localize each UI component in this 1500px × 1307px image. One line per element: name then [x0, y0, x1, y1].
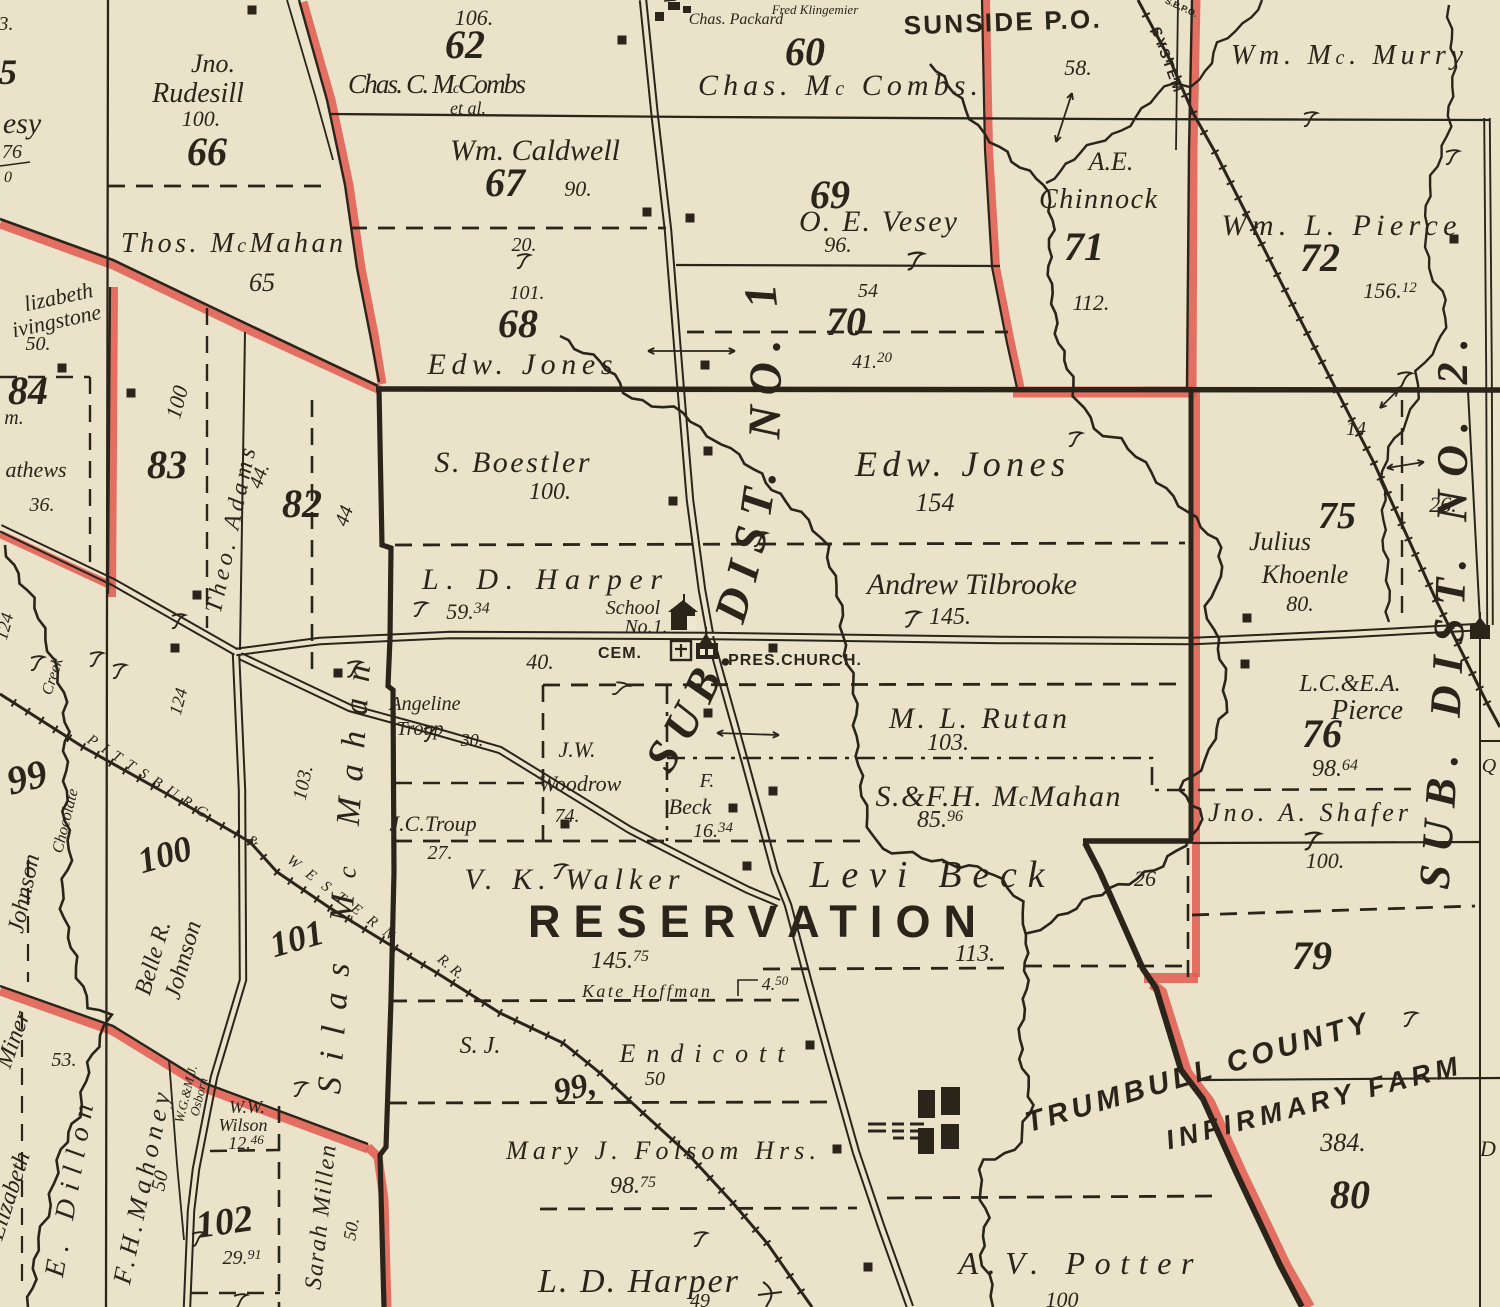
svg-text:103.: 103.	[927, 730, 969, 756]
svg-text:79: 79	[1292, 933, 1332, 978]
svg-text:L.C.&E.A.: L.C.&E.A.	[1298, 671, 1400, 697]
svg-text:27.: 27.	[428, 842, 453, 864]
svg-text:101.: 101.	[510, 282, 545, 304]
svg-text:58.: 58.	[1064, 55, 1092, 80]
svg-text:106.: 106.	[455, 5, 494, 30]
svg-text:145.: 145.	[929, 604, 971, 630]
svg-text:m.: m.	[4, 407, 23, 429]
svg-text:Andrew Tilbrooke: Andrew Tilbrooke	[865, 568, 1077, 601]
svg-text:100.: 100.	[182, 106, 221, 131]
svg-text:60: 60	[785, 29, 825, 74]
svg-text:154: 154	[916, 488, 955, 517]
svg-text:PRES.CHURCH.: PRES.CHURCH.	[728, 652, 862, 669]
svg-text:113.: 113.	[955, 941, 995, 967]
svg-text:Mary J. Folsom Hrs.: Mary J. Folsom Hrs.	[505, 1136, 816, 1165]
svg-text:Chas. Packard: Chas. Packard	[689, 11, 785, 28]
svg-text:O. E. Vesey: O. E. Vesey	[799, 205, 958, 238]
svg-text:5: 5	[0, 52, 17, 92]
svg-text:90.: 90.	[564, 176, 592, 201]
svg-text:Woodrow: Woodrow	[539, 771, 622, 796]
svg-text:102: 102	[193, 1197, 255, 1247]
svg-text:D: D	[1479, 1136, 1496, 1161]
svg-text:100.: 100.	[1306, 848, 1345, 873]
svg-text:36.: 36.	[29, 494, 55, 516]
svg-text:75: 75	[1318, 495, 1356, 537]
svg-text:50.: 50.	[26, 333, 51, 355]
svg-text:70: 70	[826, 299, 866, 344]
svg-text:Chas. C. McCombs: Chas. C. McCombs	[348, 69, 526, 99]
svg-text:54: 54	[858, 280, 878, 302]
svg-text:80: 80	[1330, 1172, 1370, 1217]
svg-text:CEM.: CEM.	[598, 645, 642, 662]
svg-text:Khoenle: Khoenle	[1261, 560, 1349, 589]
svg-text:68: 68	[498, 301, 538, 346]
svg-text:76: 76	[2, 141, 22, 163]
svg-text:esy: esy	[3, 107, 42, 140]
svg-text:S. Boestler: S. Boestler	[435, 446, 590, 479]
svg-text:No.1.: No.1.	[623, 616, 667, 638]
svg-text:A.V. Potter: A.V. Potter	[957, 1245, 1195, 1281]
svg-text:100.: 100.	[529, 479, 571, 505]
svg-text:Beck: Beck	[669, 794, 713, 819]
svg-text:3.: 3.	[0, 13, 14, 35]
svg-text:40.: 40.	[526, 649, 554, 674]
svg-text:384.: 384.	[1319, 1128, 1366, 1157]
svg-text:66: 66	[187, 129, 227, 174]
svg-text:S. J.: S. J.	[460, 1033, 501, 1059]
svg-text:Wm. Caldwell: Wm. Caldwell	[450, 134, 620, 167]
svg-text:26: 26	[1134, 866, 1156, 891]
svg-text:96.: 96.	[824, 232, 852, 257]
svg-text:W.W.: W.W.	[229, 1097, 265, 1117]
svg-text:Kate Hoffman: Kate Hoffman	[581, 981, 710, 1001]
svg-text:50: 50	[645, 1068, 665, 1090]
svg-text:0: 0	[4, 169, 12, 186]
svg-text:A.E.: A.E.	[1087, 147, 1134, 176]
svg-text:Jno.: Jno.	[191, 49, 235, 78]
svg-text:30.: 30.	[460, 730, 484, 750]
svg-text:S.&F.H. McMahan: S.&F.H. McMahan	[876, 780, 1121, 813]
svg-text:49: 49	[690, 1290, 710, 1307]
svg-text:Levi Beck: Levi Beck	[809, 854, 1046, 896]
svg-text:Rudesill: Rudesill	[151, 78, 244, 109]
svg-text:et al.: et al.	[450, 98, 486, 118]
svg-text:65: 65	[249, 268, 275, 297]
svg-text:100: 100	[1046, 1287, 1079, 1307]
svg-text:83: 83	[147, 442, 187, 487]
svg-text:82: 82	[282, 481, 322, 526]
svg-text:Julius: Julius	[1249, 527, 1311, 556]
svg-text:Fred Klingemier: Fred Klingemier	[771, 2, 859, 17]
svg-text:50.: 50.	[339, 1216, 363, 1242]
svg-text:athews: athews	[5, 457, 66, 482]
svg-text:Pierce: Pierce	[1330, 695, 1403, 726]
svg-text:Angeline: Angeline	[387, 693, 460, 715]
svg-text:14: 14	[1346, 418, 1366, 440]
svg-text:J.W.: J.W.	[558, 737, 595, 762]
svg-text:71: 71	[1064, 224, 1104, 269]
svg-text:Q: Q	[1482, 755, 1497, 777]
svg-text:RESERVATION: RESERVATION	[528, 896, 976, 947]
svg-text:J.C.Troup: J.C.Troup	[389, 811, 476, 836]
svg-text:80.: 80.	[1286, 591, 1314, 616]
svg-text:112.: 112.	[1073, 290, 1110, 315]
svg-text:20.: 20.	[512, 234, 537, 256]
svg-text:F.: F.	[699, 770, 715, 792]
svg-text:53.: 53.	[52, 1049, 77, 1071]
